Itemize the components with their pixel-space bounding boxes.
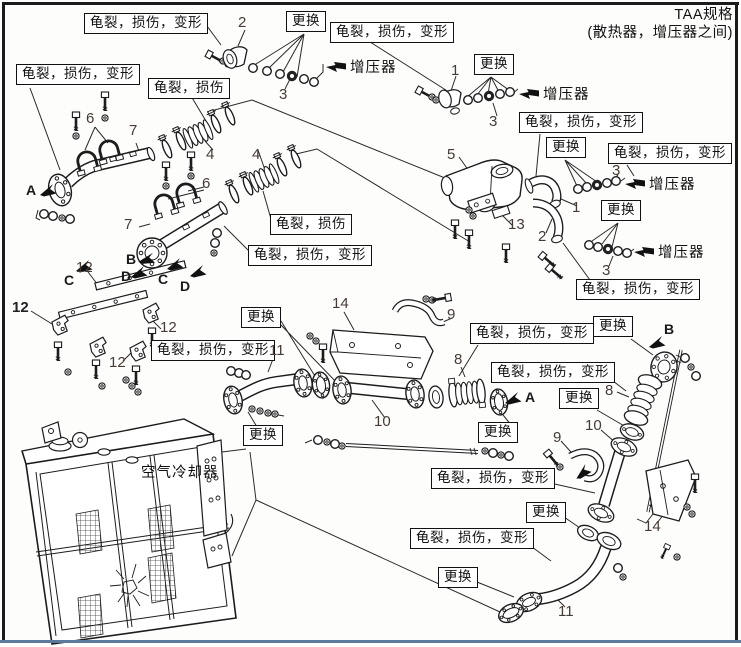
callout-replace: 更换 xyxy=(526,502,566,523)
air-cooler xyxy=(22,419,236,644)
part-number-1: 1 xyxy=(572,199,580,216)
turbocharger-pointer: 增压器 xyxy=(519,83,590,104)
callout-crack-damage-deform: 龟裂，损伤，变形 xyxy=(608,143,732,164)
callout-replace: 更换 xyxy=(478,422,518,443)
part-number-12: 12 xyxy=(12,299,29,316)
arrow-b2-icon xyxy=(649,336,666,349)
part-number-11: 11 xyxy=(269,342,285,359)
callout-replace: 更换 xyxy=(286,11,326,32)
callout-crack-damage-deform: 龟裂，损伤，变形 xyxy=(491,362,615,383)
part-number-1: 1 xyxy=(451,62,459,79)
bellows-8b xyxy=(623,372,664,428)
junction-5-assembly xyxy=(440,160,522,263)
part-number-3: 3 xyxy=(602,262,610,279)
callout-crack-damage: 龟裂，损伤 xyxy=(148,78,230,99)
ref-letter-a: A xyxy=(525,389,535,405)
callout-replace: 更换 xyxy=(546,137,586,158)
part-number-3: 3 xyxy=(489,113,497,130)
turbo-arrow-icon xyxy=(326,60,346,73)
callout-crack-damage: 龟裂，损伤 xyxy=(270,214,352,235)
part-number-7: 7 xyxy=(129,122,137,139)
callout-crack-damage-deform: 龟裂，损伤，变形 xyxy=(470,323,594,344)
part-number-3: 3 xyxy=(279,86,287,103)
part-number-13: 13 xyxy=(508,216,525,233)
callout-replace: 更换 xyxy=(241,307,281,328)
part-number-10: 10 xyxy=(374,413,391,430)
bracket-14a-assembly xyxy=(307,293,452,379)
part-number-7: 7 xyxy=(124,216,132,233)
part-number-5: 5 xyxy=(447,146,455,163)
part-number-14: 14 xyxy=(644,518,661,535)
callout-replace: 更换 xyxy=(243,425,283,446)
part-number-4: 4 xyxy=(206,146,214,163)
part-number-3: 3 xyxy=(612,162,620,179)
callout-crack-damage-deform: 龟裂，损伤，变形 xyxy=(330,22,454,43)
callout-crack-damage-deform: 龟裂，损伤，变形 xyxy=(248,245,372,266)
bellows-8a xyxy=(447,375,486,411)
turbo-arrow-icon xyxy=(634,245,654,258)
callout-crack-damage-deform: 龟裂，损伤，变形 xyxy=(519,112,643,133)
bottom-rule xyxy=(0,640,741,643)
callout-crack-damage-deform: 龟裂，损伤，变形 xyxy=(84,13,208,34)
callout-replace: 更换 xyxy=(601,200,641,221)
page-title: TAA规格 (散热器，增压器之间) xyxy=(587,6,733,42)
ref-letter-d: D xyxy=(180,278,190,294)
turbo-arrow-icon xyxy=(519,87,539,100)
callout-crack-damage-deform: 龟裂，损伤，变形 xyxy=(410,528,534,549)
turbocharger-label: 增压器 xyxy=(350,56,397,77)
turbocharger-pointer: 增压器 xyxy=(634,241,705,262)
parts-diagram-page: TAA规格 (散热器，增压器之间) 龟裂，损伤，变形 更换 龟裂，损伤，变形 龟… xyxy=(0,0,741,647)
part-number-6: 6 xyxy=(86,110,94,127)
part-number-8: 8 xyxy=(605,382,613,399)
air-cooler-text: 空气冷却器 xyxy=(141,461,219,482)
callout-crack-damage-deform: 龟裂，损伤，变形 xyxy=(16,64,140,85)
part-number-2: 2 xyxy=(538,228,546,245)
arrow-d2-icon xyxy=(190,265,207,278)
part-number-12: 12 xyxy=(160,319,177,336)
part-number-12: 12 xyxy=(76,259,93,276)
turbocharger-label: 增压器 xyxy=(649,173,696,194)
callout-replace: 更换 xyxy=(438,567,478,588)
part-number-2: 2 xyxy=(238,14,246,31)
air-cooler-label: 空气冷却器 xyxy=(141,461,219,482)
part-number-11: 11 xyxy=(558,603,574,620)
bracket-14b xyxy=(637,460,696,523)
ref-letter-d: D xyxy=(121,268,131,284)
ref-letter-b: B xyxy=(664,321,674,337)
part-number-9: 9 xyxy=(447,306,455,323)
callout-replace: 更换 xyxy=(474,54,514,75)
part-number-9: 9 xyxy=(553,429,561,446)
part-number-10: 10 xyxy=(585,417,602,434)
turbocharger-pointer: 增压器 xyxy=(326,56,397,77)
turbocharger-label: 增压器 xyxy=(658,241,705,262)
turbocharger-label: 增压器 xyxy=(543,83,590,104)
callout-crack-damage-deform: 龟裂，损伤，变形 xyxy=(431,468,555,489)
ref-letter-b: B xyxy=(126,251,136,267)
ref-letter-a: A xyxy=(26,182,36,198)
callout-crack-damage-deform: 龟裂，损伤，变形 xyxy=(151,340,275,361)
elbow-1-assembly xyxy=(415,86,514,115)
callout-replace: 更换 xyxy=(593,316,633,337)
title-line2: (散热器，增压器之间) xyxy=(587,24,733,42)
callout-replace: 更换 xyxy=(559,388,599,409)
part-number-4: 4 xyxy=(252,146,260,163)
turbo-arrow-icon xyxy=(625,177,645,190)
callout-crack-damage-deform: 龟裂，损伤，变形 xyxy=(576,279,700,300)
turbocharger-pointer: 增压器 xyxy=(625,173,696,194)
part-number-12: 12 xyxy=(109,354,126,371)
title-line1: TAA规格 xyxy=(587,6,733,24)
part-number-6: 6 xyxy=(202,175,210,192)
ref-letter-c: C xyxy=(158,271,168,287)
ref-letter-c: C xyxy=(64,272,74,288)
part-number-8: 8 xyxy=(454,351,462,368)
part-number-14: 14 xyxy=(332,295,349,312)
